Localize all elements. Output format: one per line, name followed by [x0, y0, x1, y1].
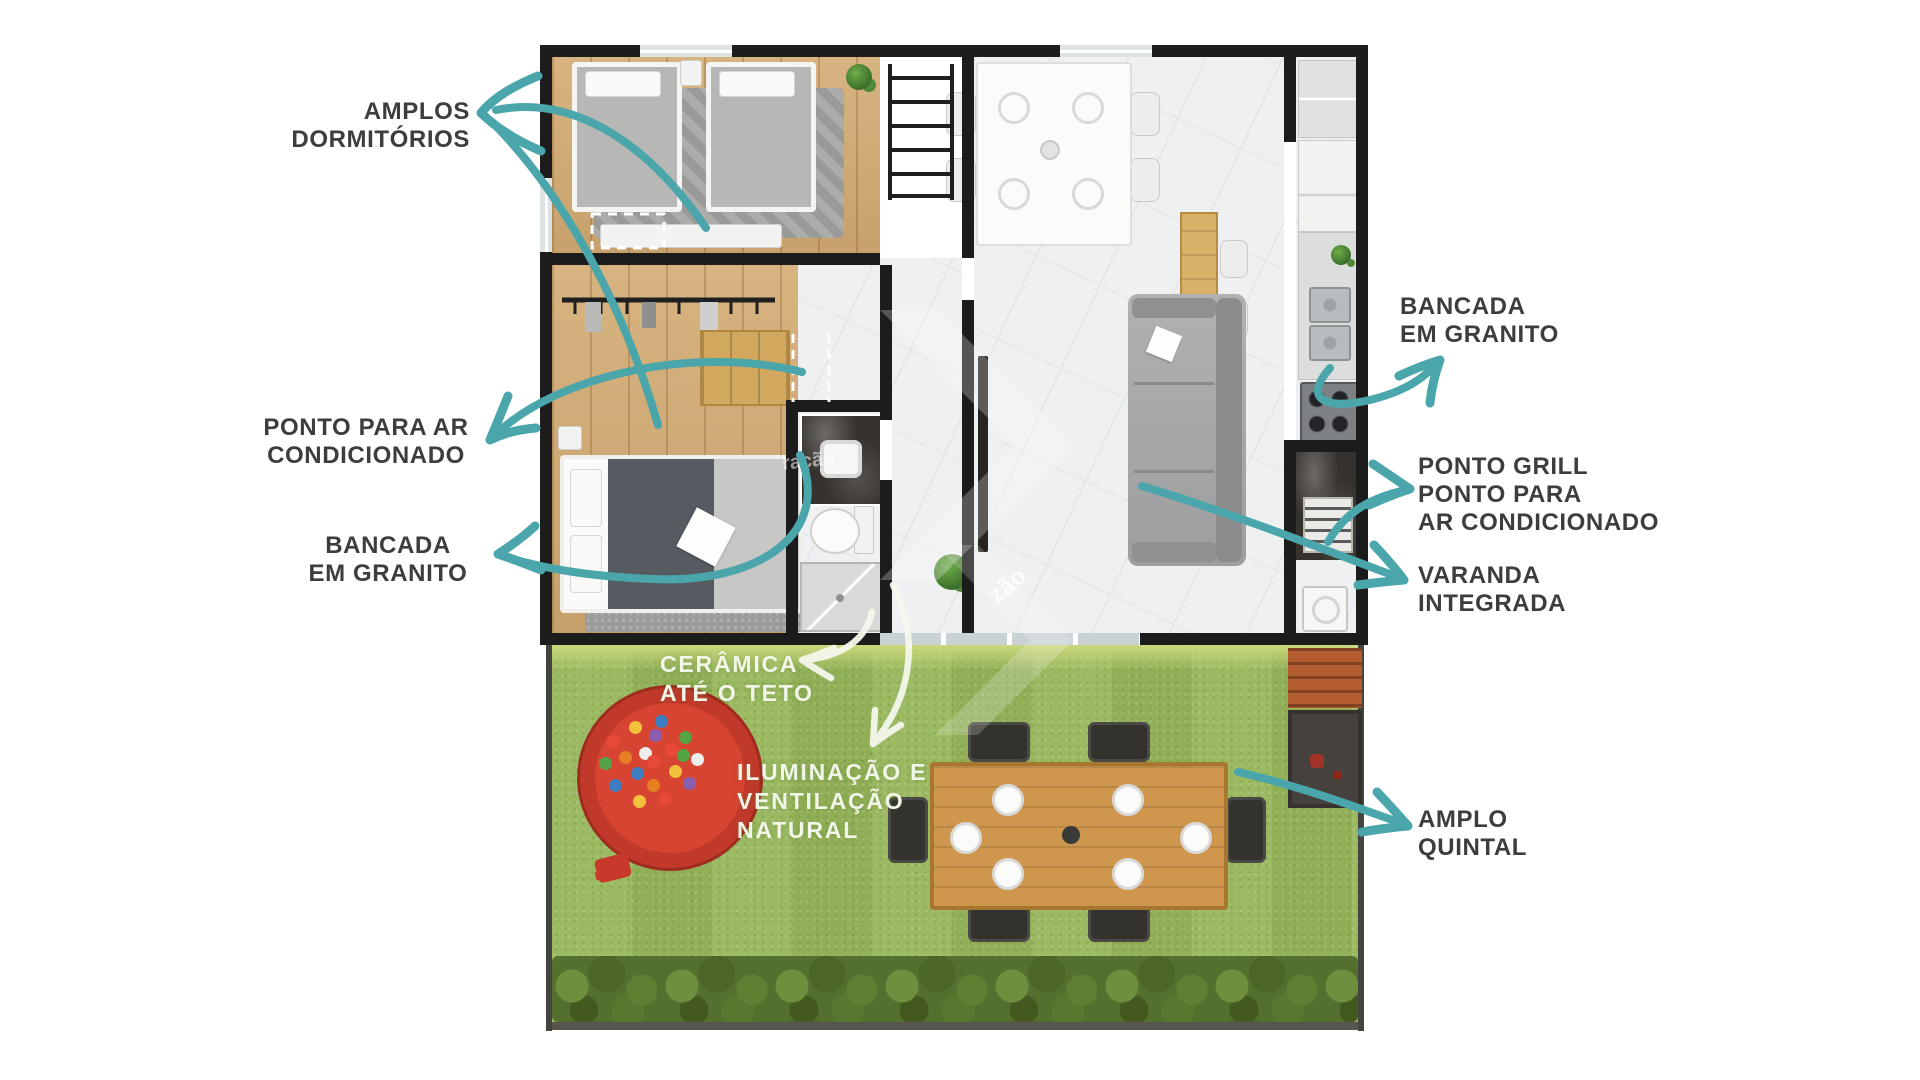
outdoor-chair — [1226, 797, 1266, 863]
dining-chair — [1130, 158, 1160, 202]
wall-kitchen-nook — [1284, 57, 1296, 142]
label-line: DORMITÓRIOS — [291, 126, 470, 153]
bed-throw — [676, 507, 736, 567]
bathroom-sink — [820, 440, 862, 478]
arrow-amplos-head — [481, 76, 541, 151]
tank-basin — [1312, 596, 1340, 624]
outdoor-chair — [968, 722, 1030, 762]
sofa-pillow — [1146, 326, 1182, 362]
bedroom1-dresser — [600, 224, 782, 248]
label-line: VARANDA — [1418, 562, 1540, 589]
plate — [1112, 784, 1144, 816]
nightstand — [680, 60, 702, 86]
arrow-quintal-head — [1362, 792, 1408, 832]
label-iluminacao: ILUMINAÇÃO E VENTILAÇÃO NATURAL — [737, 758, 977, 845]
bbq-embers — [1310, 754, 1324, 768]
wall-varanda-bottom — [1296, 633, 1368, 645]
sofa — [1128, 294, 1246, 566]
label-line: PONTO PARA AR — [263, 414, 468, 441]
stool — [1220, 240, 1248, 278]
outdoor-chair — [1088, 722, 1150, 762]
label-line: VENTILAÇÃO — [737, 788, 905, 814]
toilet — [810, 508, 860, 554]
wood-deck — [1288, 648, 1362, 708]
wall-hall-left — [880, 480, 892, 633]
label-line: EM GRANITO — [309, 560, 468, 587]
ball-pit-balls — [647, 755, 660, 768]
label-varanda-integrada: VARANDA INTEGRADA — [1418, 562, 1678, 618]
kitchen-cabinet — [1298, 60, 1358, 138]
label-line: QUINTAL — [1418, 834, 1527, 861]
wall-bathroom-top — [786, 400, 880, 412]
fridge — [1298, 140, 1358, 232]
stove-cooktop — [1300, 382, 1360, 442]
wall-bathroom-left — [786, 400, 798, 633]
label-amplos-dormitorios: AMPLOS DORMITÓRIOS — [270, 98, 470, 154]
arrow-grill-head — [1369, 464, 1410, 505]
wardrobe — [700, 330, 790, 406]
floor-plan-canvas: ração zão — [0, 0, 1920, 1080]
dining-chair — [1130, 92, 1160, 136]
plate — [992, 784, 1024, 816]
label-ceramica: CERÂMICA ATÉ O TETO — [660, 650, 900, 708]
plate — [1072, 92, 1104, 124]
label-line: EM GRANITO — [1400, 321, 1559, 348]
nightstand — [558, 426, 582, 450]
label-line: NATURAL — [737, 817, 859, 843]
pillow — [585, 71, 661, 97]
label-line: AR CONDICIONADO — [1418, 509, 1659, 536]
label-line: ATÉ O TETO — [660, 680, 814, 706]
window — [640, 45, 732, 57]
kitchen-sink — [1309, 325, 1351, 361]
shower-drain — [836, 594, 844, 602]
single-bed — [706, 62, 816, 212]
hedge-row — [552, 956, 1358, 1022]
ladder-shelf-icon — [890, 64, 952, 200]
wall-bedroom1-bottom — [552, 253, 880, 265]
single-bed — [572, 62, 682, 212]
sliding-glass-door — [880, 633, 1140, 645]
sofa-armrest — [1132, 542, 1216, 562]
pillow — [570, 535, 602, 593]
centerpiece — [1040, 140, 1060, 160]
arrow-bancada-right-head — [1399, 360, 1440, 403]
plate — [1112, 858, 1144, 890]
sink-counter — [1298, 232, 1358, 380]
label-ponto-grill: PONTO GRILL PONTO PARA AR CONDICIONADO — [1418, 453, 1698, 537]
bathroom-vanity-granite — [800, 414, 882, 506]
label-line: INTEGRADA — [1418, 590, 1566, 617]
label-line: BANCADA — [1400, 293, 1526, 320]
hall-floor-lower — [892, 400, 962, 633]
wall-varanda-top — [1284, 440, 1368, 452]
tv-panel — [978, 356, 988, 552]
double-bed — [560, 455, 803, 613]
label-line: ILUMINAÇÃO E — [737, 759, 927, 785]
wall-hall-left — [880, 265, 892, 420]
label-line: BANCADA — [325, 532, 451, 559]
shower — [800, 562, 882, 632]
window — [1060, 45, 1152, 57]
center-bowl — [1062, 826, 1080, 844]
sofa-cushion-seam — [1134, 470, 1214, 473]
grill-counter — [1303, 497, 1353, 553]
wall-outer-bottom — [540, 633, 880, 645]
plant — [1331, 245, 1351, 265]
label-amplo-quintal: AMPLO QUINTAL — [1418, 806, 1638, 862]
sofa-cushion-seam — [1134, 382, 1214, 385]
dining-table — [976, 62, 1132, 246]
ball-pit — [580, 688, 760, 868]
plate — [998, 178, 1030, 210]
plate — [1180, 822, 1212, 854]
window — [540, 178, 552, 252]
label-line: AMPLO — [1418, 806, 1508, 833]
sofa-backrest — [1216, 298, 1242, 562]
bbq-station — [1288, 710, 1362, 808]
arrow-ponto-ar-head — [490, 396, 536, 440]
label-line: CONDICIONADO — [267, 442, 465, 469]
plate — [992, 858, 1024, 890]
wall-living-hall — [962, 300, 974, 633]
laundry-tank — [1302, 586, 1348, 632]
wall-outer-left — [540, 45, 552, 645]
wall-outer-right — [1356, 45, 1368, 645]
arrow-bancada-left-head — [498, 526, 541, 570]
wall-outer-bottom — [1140, 633, 1296, 645]
pillow — [570, 469, 602, 527]
label-line: AMPLOS — [364, 98, 470, 125]
wall-varanda-left — [1284, 440, 1296, 633]
pillow — [719, 71, 795, 97]
backyard-bottom-edge — [552, 1022, 1358, 1030]
label-line: CERÂMICA — [660, 651, 798, 677]
plate — [998, 92, 1030, 124]
sofa-armrest — [1132, 298, 1216, 318]
plate — [1072, 178, 1104, 210]
label-line: PONTO GRILL — [1418, 453, 1588, 480]
label-bancada-direita: BANCADA EM GRANITO — [1400, 293, 1660, 349]
label-bancada-esquerda: BANCADA EM GRANITO — [300, 532, 476, 588]
label-line: PONTO PARA — [1418, 481, 1582, 508]
plant — [846, 64, 872, 90]
wall-bedroom-kitchen — [962, 57, 974, 258]
kitchen-sink — [1309, 287, 1351, 323]
label-ponto-ar: PONTO PARA AR CONDICIONADO — [258, 414, 474, 470]
